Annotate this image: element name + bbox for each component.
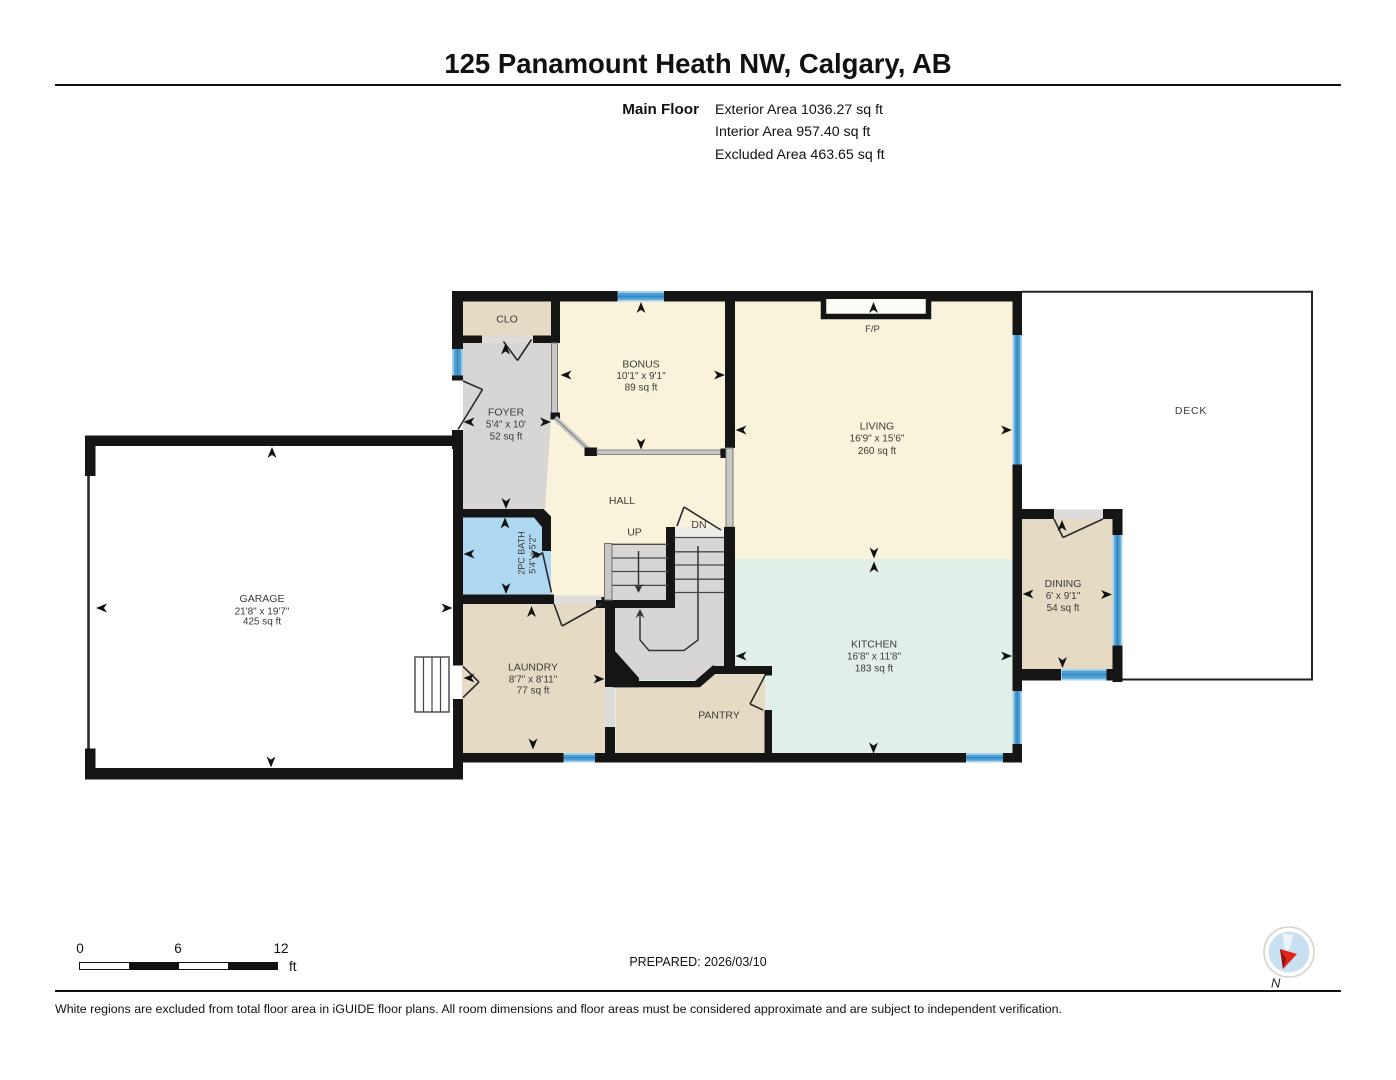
svg-text:N: N xyxy=(1271,976,1281,991)
svg-text:54 sq ft: 54 sq ft xyxy=(1047,603,1080,614)
svg-text:CLO: CLO xyxy=(496,314,518,326)
svg-text:5'4" x 5'2": 5'4" x 5'2" xyxy=(528,534,538,573)
svg-text:PANTRY: PANTRY xyxy=(698,710,740,722)
svg-text:KITCHEN: KITCHEN xyxy=(851,639,897,651)
svg-text:89 sq ft: 89 sq ft xyxy=(625,383,658,394)
svg-text:16'8" x 11'8": 16'8" x 11'8" xyxy=(847,652,902,663)
svg-text:DECK: DECK xyxy=(1175,405,1207,417)
svg-text:F/P: F/P xyxy=(865,324,880,335)
svg-text:6' x 9'1": 6' x 9'1" xyxy=(1046,591,1081,602)
svg-text:2PC BATH: 2PC BATH xyxy=(517,531,527,574)
svg-text:DN: DN xyxy=(691,519,706,531)
svg-text:8'7" x 8'11": 8'7" x 8'11" xyxy=(509,675,558,686)
svg-text:UP: UP xyxy=(627,527,642,539)
svg-text:DINING: DINING xyxy=(1045,578,1082,590)
svg-text:10'1" x 9'1": 10'1" x 9'1" xyxy=(616,371,666,382)
svg-text:183 sq ft: 183 sq ft xyxy=(855,664,894,675)
svg-text:52 sq ft: 52 sq ft xyxy=(490,432,523,443)
svg-text:LIVING: LIVING xyxy=(860,421,894,433)
svg-text:425 sq ft: 425 sq ft xyxy=(243,617,282,628)
svg-text:FOYER: FOYER xyxy=(488,407,525,419)
svg-text:260 sq ft: 260 sq ft xyxy=(858,446,897,457)
svg-text:LAUNDRY: LAUNDRY xyxy=(508,662,558,674)
svg-text:77 sq ft: 77 sq ft xyxy=(517,686,550,697)
svg-text:16'9" x 15'6": 16'9" x 15'6" xyxy=(850,434,905,445)
svg-text:BONUS: BONUS xyxy=(622,359,659,371)
svg-text:HALL: HALL xyxy=(609,495,635,507)
svg-text:5'4" x 10': 5'4" x 10' xyxy=(486,420,526,431)
svg-text:GARAGE: GARAGE xyxy=(240,593,285,605)
